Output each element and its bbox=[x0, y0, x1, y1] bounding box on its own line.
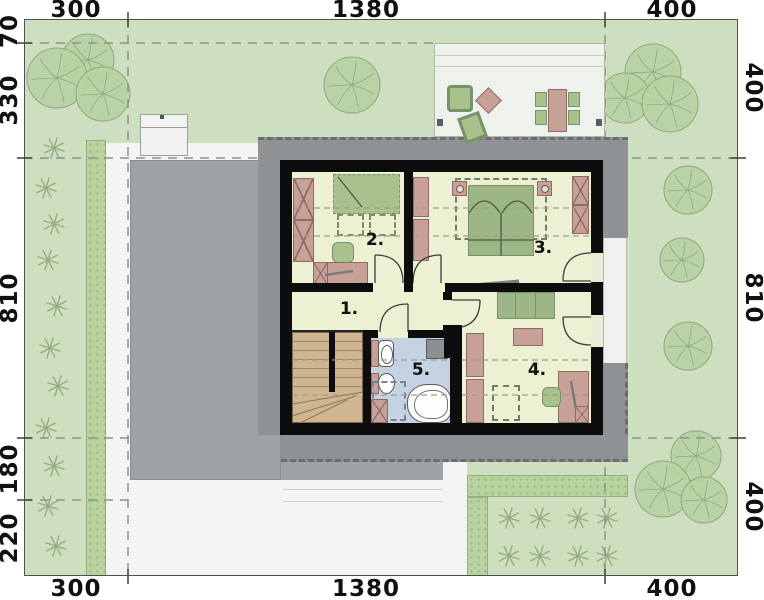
dim-bottom-300: 300 bbox=[50, 576, 101, 600]
room-label-2: 2. bbox=[366, 230, 384, 250]
dim-bottom-1380: 1380 bbox=[332, 576, 400, 600]
room-label-4: 4. bbox=[528, 360, 546, 380]
plot-boundary bbox=[24, 19, 738, 576]
room-label-3: 3. bbox=[534, 238, 552, 258]
site-plan-canvas: 1. 2. 3. 4. 5. 300 1380 400 300 1380 400… bbox=[0, 0, 764, 600]
dim-left-180: 180 bbox=[0, 443, 23, 494]
dim-bottom-400: 400 bbox=[646, 576, 697, 600]
room-label-5: 5. bbox=[412, 360, 430, 380]
dim-right-400b: 400 bbox=[740, 481, 764, 532]
room-label-1: 1. bbox=[340, 299, 358, 319]
dim-right-810: 810 bbox=[740, 272, 764, 323]
dim-left-220: 220 bbox=[0, 512, 23, 563]
dim-top-400: 400 bbox=[646, 0, 697, 23]
dim-left-330: 330 bbox=[0, 74, 23, 125]
dim-top-300: 300 bbox=[50, 0, 101, 23]
dim-right-400: 400 bbox=[740, 62, 764, 113]
dim-left-810: 810 bbox=[0, 272, 23, 323]
dim-left-70: 70 bbox=[0, 14, 23, 48]
dim-top-1380: 1380 bbox=[332, 0, 400, 23]
